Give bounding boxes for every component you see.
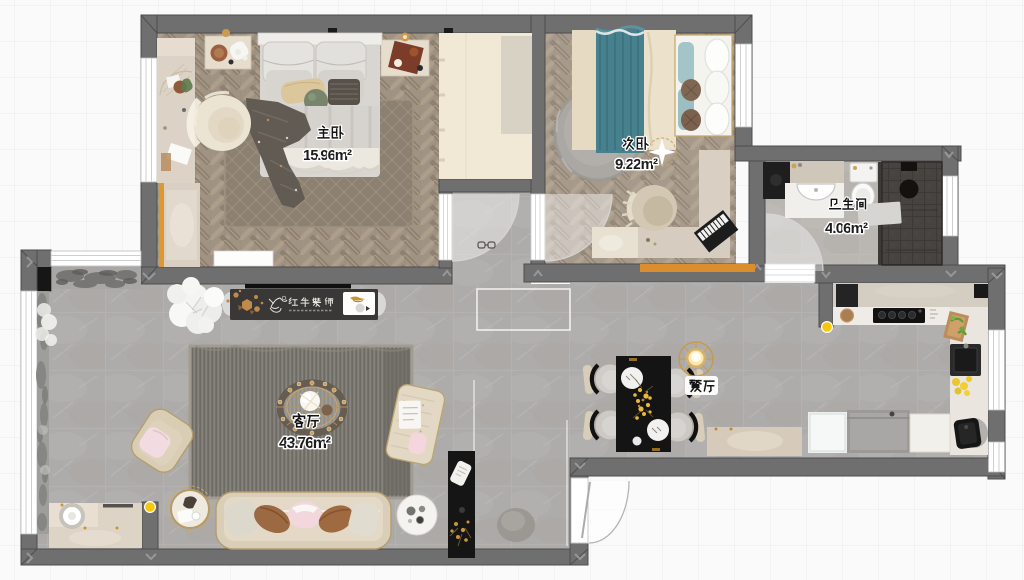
svg-text:4.06m²: 4.06m² bbox=[825, 220, 868, 237]
svg-text:15.96m²: 15.96m² bbox=[303, 147, 352, 164]
svg-text:9.22m²: 9.22m² bbox=[615, 156, 658, 173]
svg-text:43.76m²: 43.76m² bbox=[279, 435, 331, 452]
